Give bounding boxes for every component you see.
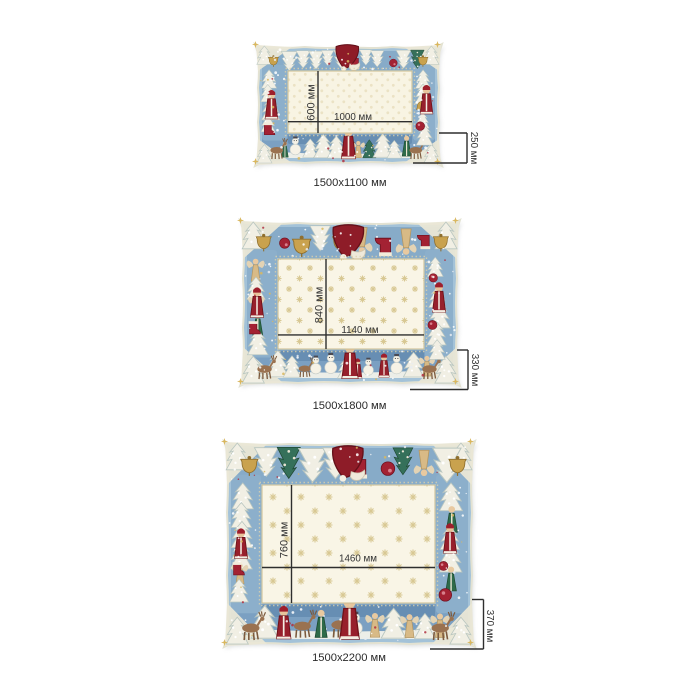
svg-text:1500х1800 мм: 1500х1800 мм: [313, 400, 387, 412]
svg-text:330 мм: 330 мм: [469, 354, 480, 387]
svg-text:840 мм: 840 мм: [314, 287, 326, 324]
svg-text:250 мм: 250 мм: [468, 132, 479, 165]
svg-text:600 мм: 600 мм: [306, 84, 318, 121]
svg-text:1140 мм: 1140 мм: [341, 325, 379, 336]
svg-text:760 мм: 760 мм: [279, 522, 291, 559]
svg-text:1500х1100 мм: 1500х1100 мм: [313, 177, 386, 189]
svg-text:1460 мм: 1460 мм: [339, 554, 377, 565]
svg-text:1500х2200 мм: 1500х2200 мм: [312, 652, 386, 664]
svg-text:370 мм: 370 мм: [484, 610, 495, 643]
svg-text:1000 мм: 1000 мм: [334, 112, 372, 123]
